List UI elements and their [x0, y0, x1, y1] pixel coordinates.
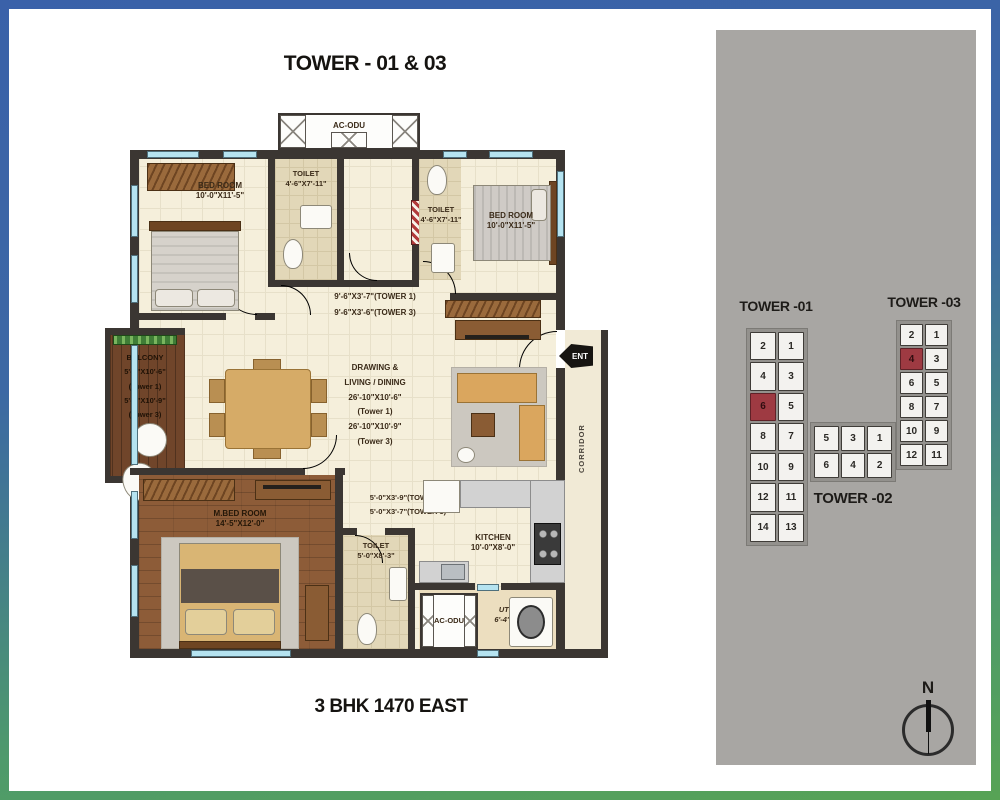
- keyplan-tower-01-unit-11: 11: [778, 483, 804, 511]
- corridor: [565, 330, 601, 650]
- north-needle-icon: [926, 700, 931, 732]
- toilet3-wc-icon: [357, 613, 377, 645]
- window-mbed-left-2: [131, 565, 138, 617]
- window-mbed-left-1: [131, 491, 138, 539]
- window-utility-bottom: [477, 650, 499, 657]
- mbed-wardrobe-icon: [143, 479, 235, 501]
- keyplan-tower-01-unit-13: 13: [778, 514, 804, 542]
- window-bed2-top: [443, 151, 467, 158]
- keyplan-tower-01-unit-10: 10: [750, 453, 776, 481]
- passage-top-line1: 9'-6"X3'-7"(TOWER 1): [300, 289, 450, 305]
- ac-odu-bottom-label: AC-ODU: [420, 616, 478, 626]
- ac-odu-top-label: AC-ODU: [311, 121, 387, 131]
- north-label: N: [912, 678, 944, 698]
- louver-right-icon: [392, 115, 418, 148]
- wall-bed2-bottom: [450, 293, 565, 300]
- stove-icon: [534, 523, 561, 565]
- bed2-name: BED ROOM: [457, 211, 565, 221]
- keyplan-tower-03-unit-3: 3: [925, 348, 948, 370]
- keyplan-tower-01-unit-12: 12: [750, 483, 776, 511]
- dining-table-icon: [225, 369, 311, 449]
- gradient-frame: TOWER - 01 & 03 3 BHK 1470 EAST AC-ODU C…: [0, 0, 1000, 800]
- wall-kitchen-utility-b: [501, 583, 565, 590]
- mbed-bench-icon: [305, 585, 329, 641]
- window-bed1-top-2: [223, 151, 257, 158]
- bed1-headboard: [149, 221, 241, 231]
- keyplan-tower-03-unit-6: 6: [900, 372, 923, 394]
- corridor-wall: [601, 330, 608, 658]
- balcony-wall-top: [105, 328, 185, 335]
- keyplan-tower-03-unit-8: 8: [900, 396, 923, 418]
- sofa-side-icon: [519, 405, 545, 461]
- keyplan-tower-02-unit-5: 5: [814, 426, 839, 451]
- toilet1-label: TOILET 4'-6"X7'-11": [273, 169, 339, 189]
- living-line6: (Tower 3): [305, 435, 445, 450]
- toilet3-label: TOILET 5'-0"X8'-3": [345, 541, 407, 561]
- keyplan-tower-03-unit-11: 11: [925, 444, 948, 466]
- balcony-dim-3: 5'-5"X10'-9": [109, 394, 181, 408]
- kitchen-dim: 10'-0"X8'-0": [453, 543, 533, 553]
- keyplan-tower-03-unit-2: 2: [900, 324, 923, 346]
- floor-plan: AC-ODU CORRIDOR BALCONY 5'-5"X10'-6" (To…: [105, 113, 605, 660]
- keyplan-tower-01-unit-5: 5: [778, 393, 804, 421]
- keyplan-tower-01-unit-14: 14: [750, 514, 776, 542]
- wall-mbed-right: [335, 468, 343, 658]
- dining-chair-r2: [311, 413, 327, 437]
- mbed-name: M.BED ROOM: [175, 509, 305, 519]
- tower-01-plate: 2143658710912111413: [746, 328, 808, 546]
- window-bed1-top: [147, 151, 199, 158]
- balcony-slider-window: [131, 345, 138, 465]
- toilet2-shower-icon: [431, 243, 455, 273]
- window-mbed-bottom: [191, 650, 291, 657]
- toilet1-basin-icon: [300, 205, 332, 229]
- dining-chair-r1: [311, 379, 327, 403]
- balcony-dim-1: 5'-5"X10'-6": [109, 365, 181, 379]
- wall-toilet3-right: [408, 528, 415, 658]
- keyplan-panel: TOWER -01 2143658710912111413 TOWER -03 …: [716, 30, 976, 765]
- wall-toilet3-top-a: [343, 528, 357, 535]
- tower-03-label: TOWER -03: [883, 294, 965, 310]
- dining-chair-l2: [209, 413, 225, 437]
- plan-type-label: 3 BHK 1470 EAST: [291, 696, 491, 718]
- wall-toilet2-bed2-a: [412, 159, 419, 200]
- kitchen-name: KITCHEN: [453, 533, 533, 543]
- balcony-label: BALCONY 5'-5"X10'-6" (Tower 1) 5'-5"X10'…: [109, 351, 181, 422]
- bed1-dim: 10'-0"X11'-5": [165, 191, 275, 201]
- tower-03-plate: 214365871091211: [896, 320, 952, 470]
- window-utility-top: [477, 584, 499, 591]
- passage-top-line2: 9'-6"X3'-6"(TOWER 3): [300, 305, 450, 321]
- sofa-main-icon: [457, 373, 537, 403]
- dining-chair-l1: [209, 379, 225, 403]
- mbed-tv-icon: [263, 485, 321, 489]
- bed1-pillow-1: [155, 289, 193, 307]
- keyplan-tower-03-unit-10: 10: [900, 420, 923, 442]
- bed2-wardrobe-icon: [445, 300, 541, 318]
- wall-bed1-bottom: [130, 313, 226, 320]
- balcony-tower-1: (Tower 1): [109, 380, 181, 394]
- wall-kitchen-utility-a: [415, 583, 475, 590]
- keyplan-tower-02-unit-3: 3: [841, 426, 866, 451]
- toilet1-wc-icon: [283, 239, 303, 269]
- mbed-pillow-1: [185, 609, 227, 635]
- tower-01-label: TOWER -01: [734, 298, 818, 314]
- keyplan-tower-01-unit-8: 8: [750, 423, 776, 451]
- bed2-dim: 10'-0"X11'-5": [457, 221, 565, 231]
- mbed-label: M.BED ROOM 14'-5"X12'-0": [175, 509, 305, 530]
- toilet3-basin-icon: [389, 567, 407, 601]
- toilet2-wc-icon: [427, 165, 447, 195]
- balcony-tower-3: (Tower 3): [109, 408, 181, 422]
- mbed-footboard: [179, 641, 281, 649]
- corridor-label: CORRIDOR: [577, 413, 586, 473]
- keyplan-tower-03-unit-1: 1: [925, 324, 948, 346]
- sink-icon: [441, 564, 465, 580]
- balcony-name: BALCONY: [109, 351, 181, 365]
- keyplan-tower-02-unit-2: 2: [867, 453, 892, 478]
- kitchen-label: KITCHEN 10'-0"X8'-0": [453, 533, 533, 554]
- page-canvas: TOWER - 01 & 03 3 BHK 1470 EAST AC-ODU C…: [9, 9, 991, 791]
- bed1-name: BED ROOM: [165, 181, 275, 191]
- keyplan-tower-01-unit-1: 1: [778, 332, 804, 360]
- keyplan-tower-01-unit-3: 3: [778, 362, 804, 390]
- keyplan-tower-03-unit-4: 4: [900, 348, 923, 370]
- keyplan-tower-01-unit-7: 7: [778, 423, 804, 451]
- living-stool-icon: [457, 447, 475, 463]
- mbed-dim: 14'-5"X12'-0": [175, 519, 305, 529]
- coffee-table-icon: [471, 413, 495, 437]
- keyplan-tower-03-unit-5: 5: [925, 372, 948, 394]
- mbed-pillow-2: [233, 609, 275, 635]
- planter-icon: [113, 335, 177, 345]
- keyplan-tower-03-unit-7: 7: [925, 396, 948, 418]
- fridge-icon: [423, 480, 460, 513]
- passage-top-label: 9'-6"X3'-7"(TOWER 1) 9'-6"X3'-6"(TOWER 3…: [300, 289, 450, 321]
- keyplan-tower-02-unit-6: 6: [814, 453, 839, 478]
- wall-mbed-top: [130, 468, 305, 475]
- tower-02-label: TOWER -02: [804, 490, 902, 507]
- ac-odu-top-unit-icon: [331, 132, 367, 148]
- bed2-label: BED ROOM 10'-0"X11'-5": [457, 211, 565, 232]
- keyplan-tower-01-unit-6: 6: [750, 393, 776, 421]
- living-line1: DRAWING &: [305, 361, 445, 376]
- window-bed1-left-1: [131, 185, 138, 237]
- mbed-tv-unit: [255, 480, 331, 500]
- balcony-table-icon: [133, 423, 167, 457]
- tv-icon: [465, 335, 529, 339]
- keyplan-tower-03-unit-9: 9: [925, 420, 948, 442]
- north-needle-tail: [928, 732, 929, 754]
- window-bed2-top-2: [489, 151, 533, 158]
- wall-bed1-bottom-stub: [255, 313, 275, 320]
- toilet3-name: TOILET: [345, 541, 407, 551]
- toilet1-name: TOILET: [273, 169, 339, 179]
- bed1-label: BED ROOM 10'-0"X11'-5": [165, 181, 275, 202]
- mbed-throw-blanket: [181, 569, 279, 603]
- washing-machine-door-icon: [517, 605, 545, 639]
- toilet1-dim: 4'-6"X7'-11": [273, 179, 339, 189]
- page-title: TOWER - 01 & 03: [200, 52, 530, 76]
- keyplan-tower-03-unit-12: 12: [900, 444, 923, 466]
- keyplan-tower-02-unit-4: 4: [841, 453, 866, 478]
- louver-left-icon: [280, 115, 306, 148]
- tower-02-plate: 531642: [810, 422, 896, 482]
- window-bed1-left-2: [131, 255, 138, 303]
- keyplan-tower-01-unit-4: 4: [750, 362, 776, 390]
- keyplan-tower-01-unit-9: 9: [778, 453, 804, 481]
- keyplan-tower-02-unit-1: 1: [867, 426, 892, 451]
- toilet3-dim: 5'-0"X8'-3": [345, 551, 407, 561]
- keyplan-tower-01-unit-2: 2: [750, 332, 776, 360]
- bed1-pillow-2: [197, 289, 235, 307]
